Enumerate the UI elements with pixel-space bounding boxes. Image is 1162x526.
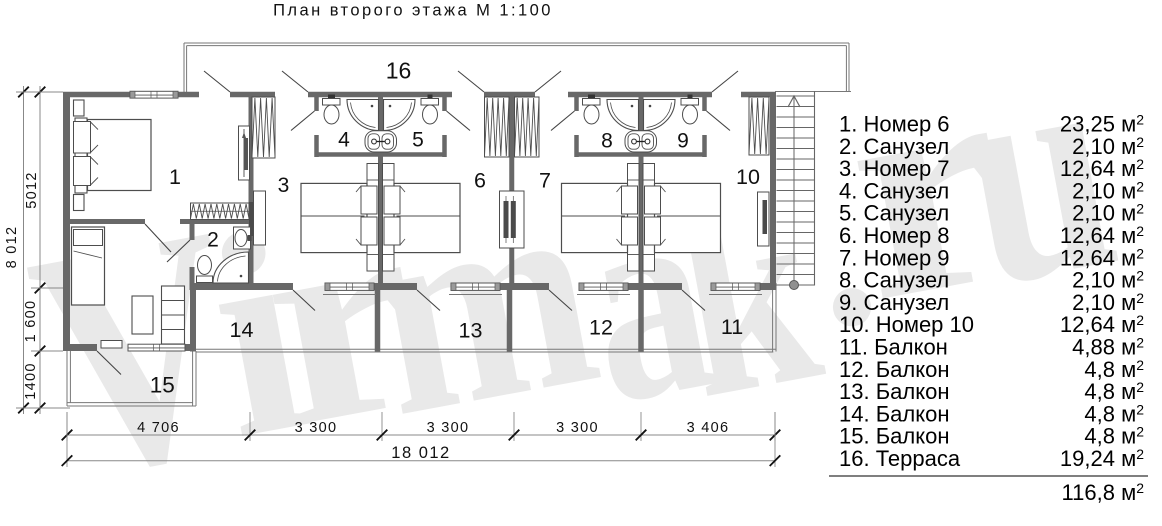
svg-text:7. Номер 9: 7. Номер 9 [839,245,950,270]
svg-text:18 012: 18 012 [391,444,450,462]
svg-text:4. Санузел: 4. Санузел [839,178,949,203]
svg-text:3 300: 3 300 [427,420,470,436]
svg-text:2,10 м2: 2,10 м2 [1072,290,1144,315]
svg-text:6: 6 [474,169,486,193]
svg-text:8. Санузел: 8. Санузел [839,268,949,293]
svg-text:3: 3 [278,174,290,197]
svg-text:1 600: 1 600 [23,300,39,343]
svg-text:4: 4 [338,129,350,152]
svg-text:3 406: 3 406 [687,420,730,436]
svg-text:13: 13 [459,319,483,343]
svg-text:3 300: 3 300 [556,420,599,436]
svg-text:План второго этажа М 1:100: План второго этажа М 1:100 [273,2,553,20]
svg-text:14: 14 [230,318,254,342]
svg-text:12,64 м2: 12,64 м2 [1060,312,1144,337]
svg-text:10. Номер 10: 10. Номер 10 [839,312,974,337]
svg-text:9: 9 [677,130,689,153]
svg-text:7: 7 [539,169,551,193]
svg-text:3 300: 3 300 [295,420,338,436]
svg-text:1: 1 [169,165,181,189]
svg-text:11. Балкон: 11. Балкон [839,335,948,360]
svg-text:3. Номер 7: 3. Номер 7 [839,156,950,181]
svg-text:4,88 м2: 4,88 м2 [1072,335,1144,360]
svg-text:4,8 м2: 4,8 м2 [1084,379,1144,404]
svg-text:5012: 5012 [24,171,40,208]
svg-text:12,64 м2: 12,64 м2 [1060,156,1144,181]
svg-text:12,64 м2: 12,64 м2 [1060,245,1144,270]
svg-text:4,8 м2: 4,8 м2 [1084,401,1144,426]
svg-text:1400: 1400 [23,362,39,399]
svg-text:9. Санузел: 9. Санузел [839,290,949,315]
svg-text:12,64 м2: 12,64 м2 [1060,223,1144,248]
svg-text:16. Терраса: 16. Терраса [839,446,961,471]
svg-text:13. Балкон: 13. Балкон [839,379,949,404]
svg-text:5. Санузел: 5. Санузел [839,201,949,226]
svg-text:4,8 м2: 4,8 м2 [1084,357,1144,382]
svg-text:11: 11 [721,315,743,339]
svg-text:4,8 м2: 4,8 м2 [1084,424,1144,449]
svg-text:6. Номер 8: 6. Номер 8 [839,223,950,248]
svg-text:15: 15 [150,373,175,398]
svg-text:2. Санузел: 2. Санузел [839,134,949,159]
svg-text:12: 12 [589,316,613,340]
svg-text:116,8 м2: 116,8 м2 [1062,480,1145,505]
svg-text:5: 5 [412,129,424,152]
svg-text:15. Балкон: 15. Балкон [839,424,949,449]
svg-text:23,25 м2: 23,25 м2 [1060,112,1144,137]
svg-text:2,10 м2: 2,10 м2 [1072,201,1144,226]
svg-text:8: 8 [601,130,613,153]
svg-text:2,10 м2: 2,10 м2 [1072,268,1144,293]
svg-text:10: 10 [736,165,760,189]
svg-text:8 012: 8 012 [4,226,20,269]
svg-text:1. Номер 6: 1. Номер 6 [839,112,950,137]
svg-text:2,10 м2: 2,10 м2 [1072,178,1144,203]
svg-text:2: 2 [207,229,219,252]
svg-text:19,24 м2: 19,24 м2 [1060,446,1144,471]
svg-text:2,10 м2: 2,10 м2 [1072,134,1144,159]
svg-text:14. Балкон: 14. Балкон [839,401,949,426]
svg-text:4 706: 4 706 [137,420,180,436]
svg-text:12. Балкон: 12. Балкон [839,357,949,382]
svg-text:16: 16 [386,58,412,84]
